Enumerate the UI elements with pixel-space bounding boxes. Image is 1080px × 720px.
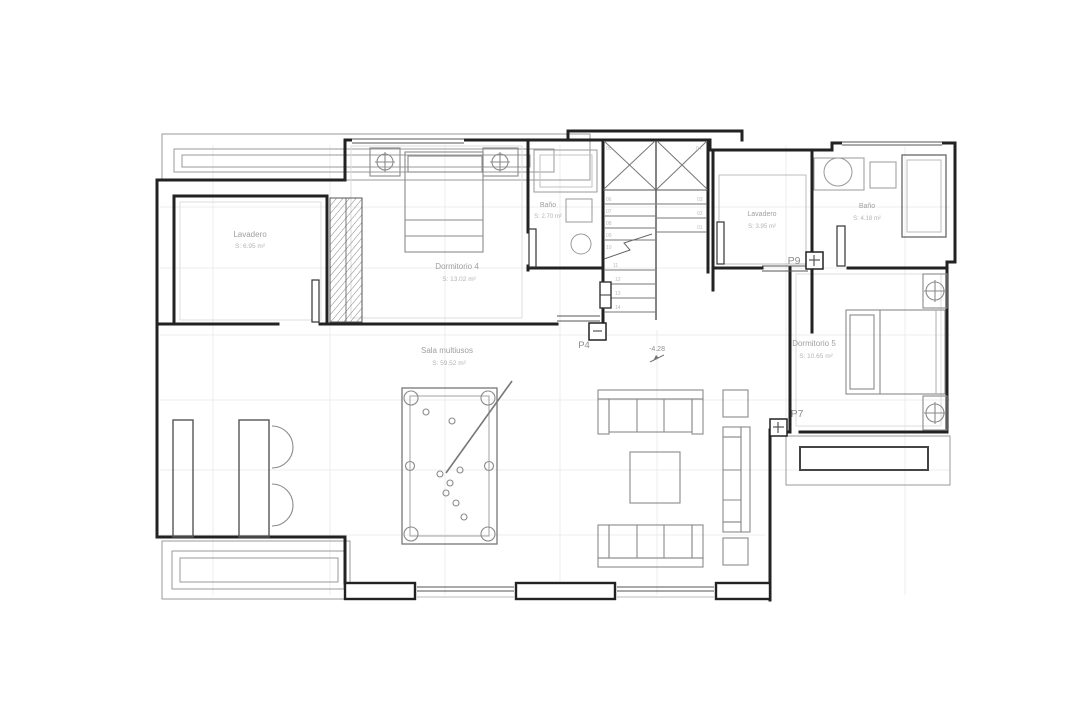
room-area-bano-center: S: 2.70 m²: [534, 214, 562, 220]
room-area-bano-right: S: 4.18 m²: [853, 216, 881, 222]
room-area-lavadero-right: S: 3.95 m²: [748, 224, 776, 230]
door-labels: P4 P7 P9: [578, 255, 803, 420]
door-label-p7: P7: [791, 408, 804, 420]
room-label-sala-multiusos: Sala multiusos: [421, 346, 473, 355]
step-number: 01: [697, 225, 703, 231]
room-area-lavadero-left: S: 6.95 m²: [235, 243, 266, 250]
room-area-dormitorio-5: S: 10.65 m²: [799, 353, 833, 360]
bath-right-fixtures: [814, 155, 946, 237]
step-number: 03: [697, 197, 703, 203]
hatched-shelf-strip: [330, 198, 362, 322]
windows: [352, 137, 942, 597]
step-number: 11: [613, 263, 618, 269]
step-number: 12: [615, 277, 621, 283]
step-number: 04: [696, 146, 702, 152]
room-label-bano-center: Baño: [540, 202, 556, 209]
room-label-bano-right: Baño: [859, 203, 875, 210]
room-label-dormitorio-4: Dormitorio 4: [435, 262, 479, 271]
desk-and-chairs: [173, 420, 293, 537]
step-number: 13: [615, 291, 621, 297]
bedroom4-furniture: [370, 148, 518, 252]
step-number: 10: [606, 245, 612, 251]
door-label-p9: P9: [788, 255, 801, 267]
step-number: 08: [606, 221, 612, 227]
step-number: 14: [615, 305, 621, 311]
step-number: 09: [606, 233, 612, 239]
step-number: 02: [697, 211, 703, 217]
living-area-furniture: [598, 390, 750, 567]
cue-stick: [446, 381, 512, 473]
door-label-p4: P4: [578, 340, 590, 351]
step-number: 06: [606, 197, 612, 203]
floor-plan-drawing: 05 04 06 07 08 09 10 11 12 13 14 03 02 0…: [0, 0, 1080, 720]
room-area-dormitorio-4: S: 13.02 m²: [442, 276, 476, 283]
room-label-lavadero-left: Lavadero: [233, 230, 267, 239]
floor-plan-page: 05 04 06 07 08 09 10 11 12 13 14 03 02 0…: [0, 0, 1080, 720]
room-label-lavadero-right: Lavadero: [747, 211, 776, 218]
step-number: 05: [606, 146, 612, 152]
step-number: 07: [606, 209, 612, 215]
level-value: -4.28: [649, 346, 665, 353]
pool-table: [402, 381, 512, 544]
construction-grid: [160, 145, 950, 595]
room-label-dormitorio-5: Dormitorio 5: [792, 339, 836, 348]
room-area-sala-multiusos: S: 59.52 m²: [432, 360, 466, 367]
bedroom5-furniture: [846, 274, 947, 430]
